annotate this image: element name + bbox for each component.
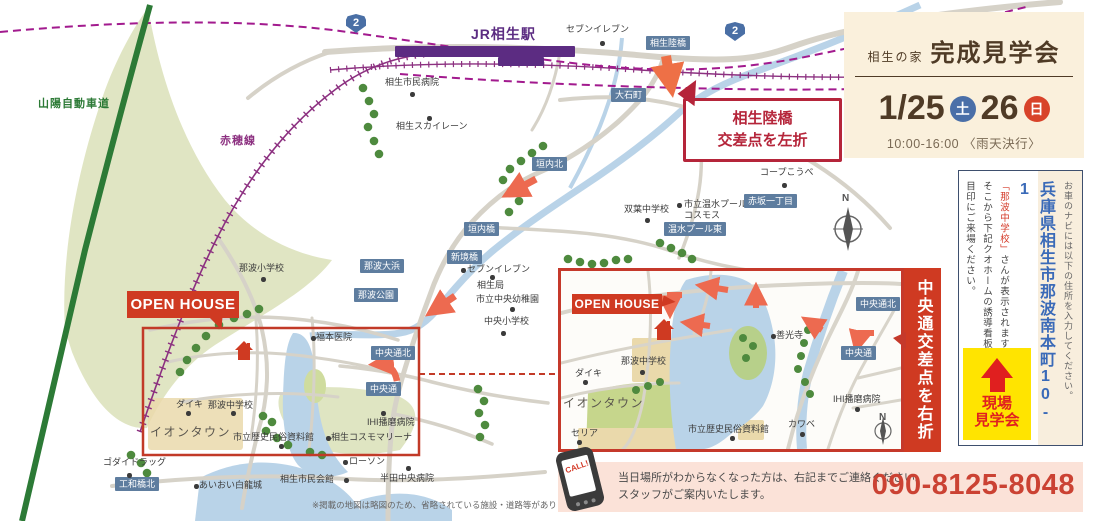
inset-island bbox=[729, 326, 767, 380]
landmark-name: 「那波中学校」 bbox=[998, 181, 1009, 255]
address-sidebar: お車のナビには以下の住所を入力してください。 兵庫県相生市那波南本町10-1 「… bbox=[958, 170, 1083, 446]
inset-compass-icon bbox=[875, 417, 891, 445]
phone-screen: CALL! bbox=[561, 455, 596, 497]
inset-house-icon bbox=[654, 319, 674, 340]
map-footnote: ※掲載の地図は略図のため、省略されている施設・道路等があります。 bbox=[312, 499, 582, 511]
weather-note: 〈雨天決行〉 bbox=[963, 137, 1041, 151]
green-areas bbox=[64, 8, 415, 454]
open-house-label-main: OPEN HOUSE bbox=[127, 291, 239, 318]
signboard-line2: 見学会 bbox=[974, 412, 1019, 429]
signboard-line1: 現場 bbox=[982, 395, 1012, 412]
event-dates: 1/25 土 26 日 bbox=[844, 89, 1084, 128]
event-title: 完成見学会 bbox=[931, 33, 1061, 68]
open-house-label-inset: OPEN HOUSE bbox=[572, 294, 662, 314]
phone-keys bbox=[576, 502, 581, 507]
left-turn-callout: 相生陸橋 交差点を左折 bbox=[683, 98, 842, 162]
up-arrow-icon-stem bbox=[990, 378, 1005, 392]
event-time: 10:00-16:00 〈雨天決行〉 bbox=[844, 133, 1084, 152]
call-label: CALL! bbox=[564, 459, 590, 476]
up-arrow-icon bbox=[981, 358, 1013, 378]
flyer-map-page: 中央通交差点を右折 山陽自動車道赤穂線JR相生駅セブンイレブン相生陸橋大石町相生… bbox=[0, 0, 1093, 521]
banner-pointer bbox=[893, 332, 906, 349]
open-house-text: OPEN HOUSE bbox=[574, 297, 659, 311]
date-saturday: 1/25 bbox=[878, 89, 944, 128]
sunday-badge: 日 bbox=[1024, 96, 1050, 122]
nav-instruction: お車のナビには以下の住所を入力してください。 bbox=[1062, 181, 1075, 433]
site-signboard-badge: 現場 見学会 bbox=[963, 348, 1031, 440]
date-sunday: 26 bbox=[981, 89, 1019, 128]
phone-number: 090-8125-8048 bbox=[872, 469, 1075, 502]
signboard-text: 現場 見学会 bbox=[974, 395, 1019, 430]
landmark-rest: さんが表示されます。 bbox=[998, 255, 1009, 360]
callout-line1: 相生陸橋 bbox=[732, 108, 792, 131]
time-range: 10:00-16:00 bbox=[887, 137, 959, 151]
brand-label: 相生の家 bbox=[867, 48, 923, 65]
saturday-badge: 土 bbox=[950, 96, 976, 122]
inset-banner: 中央通交差点を右折 bbox=[904, 268, 941, 452]
event-header: 相生の家 完成見学会 1/25 土 26 日 10:00-16:00 〈雨天決行… bbox=[844, 12, 1084, 158]
turn-right-instruction: 中央通交差点を右折 bbox=[911, 279, 935, 441]
callout-line2: 交差点を左折 bbox=[717, 130, 807, 153]
contact-bar: CALL! 当日場所がわからなくなった方は、右記までご連絡ください。 スタッフが… bbox=[558, 462, 1083, 512]
jr-station-bar bbox=[395, 46, 575, 66]
house-icon bbox=[235, 341, 253, 360]
header-divider bbox=[855, 76, 1073, 77]
compass-icon bbox=[833, 207, 863, 251]
